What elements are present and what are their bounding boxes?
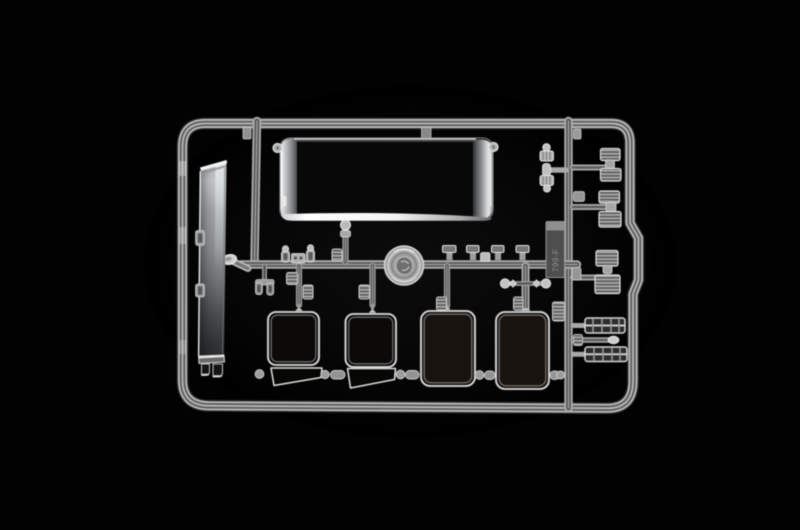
svg-text:799-F: 799-F — [552, 249, 561, 272]
